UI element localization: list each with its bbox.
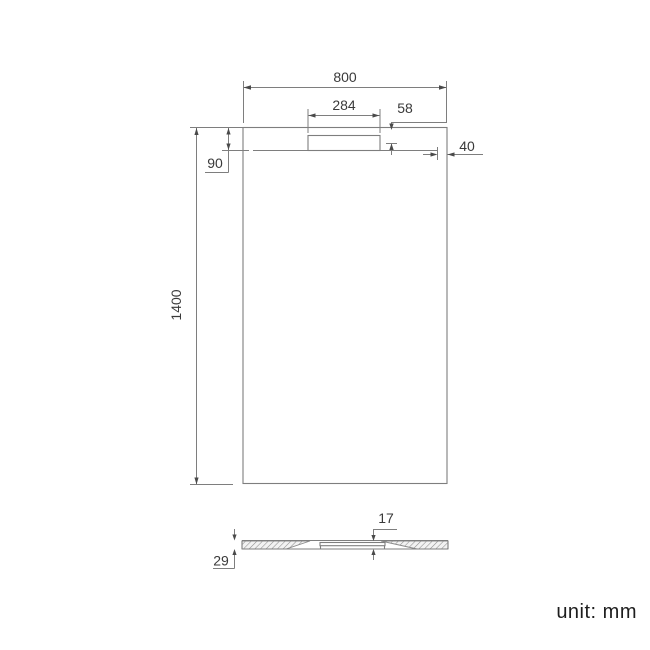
dim-284-label: 284 (332, 97, 356, 113)
arrowhead-up-icon (371, 549, 375, 555)
section-hatch-right (381, 541, 448, 549)
dim-29-label: 29 (213, 553, 229, 569)
arrowhead-left-icon (448, 152, 455, 156)
arrowhead-down-icon (194, 478, 198, 485)
arrowhead-left-icon (309, 113, 316, 117)
arrowhead-up-icon (226, 128, 230, 135)
dim-1400-label: 1400 (168, 289, 184, 320)
dim-58-label: 58 (397, 100, 413, 116)
dimension-1400: 1400 (168, 128, 233, 486)
arrowhead-up-icon (194, 128, 198, 135)
arrowhead-down-icon (226, 144, 230, 151)
shower-tray-drawing: 800 284 58 (0, 0, 650, 650)
dim-90-label: 90 (207, 155, 223, 171)
dimension-800: 800 (244, 69, 447, 123)
section-hatch-left (242, 541, 310, 549)
arrowhead-right-icon (373, 113, 380, 117)
arrowhead-left-icon (244, 85, 252, 89)
technical-drawing-page: 800 284 58 (0, 0, 650, 650)
dimension-90: 90 (190, 128, 249, 173)
dim-800-label: 800 (333, 69, 357, 85)
unit-note: unit: mm (437, 601, 637, 624)
dim-17-label: 17 (378, 510, 394, 526)
arrowhead-up-icon (232, 549, 236, 555)
dimension-17: 17 (371, 510, 397, 560)
dim-40-label: 40 (459, 138, 475, 154)
arrowhead-right-icon (439, 85, 447, 89)
section-drain-plate (320, 543, 385, 546)
arrowhead-down-icon (232, 535, 236, 541)
top-view (243, 128, 447, 484)
dimension-29: 29 (213, 529, 237, 569)
drain-cover-outline (308, 136, 380, 151)
tray-outline (243, 128, 447, 484)
section-view (242, 541, 448, 550)
